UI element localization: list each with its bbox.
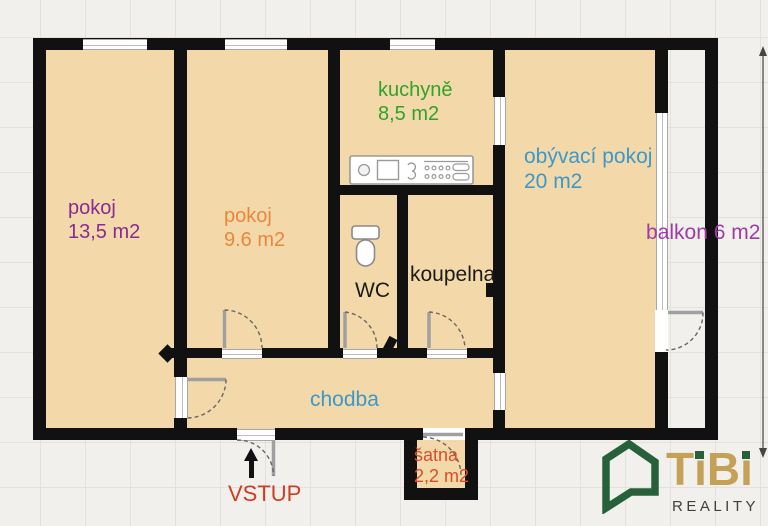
room-name: WC (355, 279, 390, 302)
wall-obyvaci-right (655, 44, 668, 113)
wall-satna-bottom (404, 488, 478, 500)
window (83, 39, 147, 50)
logo-letter: B (707, 446, 740, 492)
room-area: 2,2 m2 (414, 466, 469, 487)
wall-left (33, 38, 46, 440)
entrance-text: VSTUP (228, 481, 301, 506)
wall-obyvaci-left (493, 145, 505, 373)
wall-pokoj-divider (174, 418, 187, 440)
door-gap-entrance (237, 429, 275, 441)
room-label-pokoj-9-6: pokoj 9.6 m2 (224, 204, 285, 252)
house-icon (602, 440, 662, 514)
room-label-obyvaci-pokoj: obývací pokoj 20 m2 (524, 144, 652, 194)
room-area: 13,5 m2 (68, 220, 140, 244)
wall-pokoj-divider (174, 44, 187, 377)
wall-kuchyne-bottom (328, 185, 505, 195)
logo-letter: T (666, 446, 694, 492)
room-area: 20 m2 (524, 169, 652, 194)
wall-bottom (275, 428, 423, 440)
balcony-window (656, 113, 668, 310)
wall-bottom (33, 428, 237, 440)
room-name: chodba (310, 388, 379, 411)
room-label-pokoj-13-5: pokoj 13,5 m2 (68, 196, 140, 244)
room-label-chodba: chodba (310, 387, 379, 412)
room-area: 9.6 m2 (224, 228, 285, 252)
entrance-label: VSTUP (228, 481, 301, 507)
room-name: koupelna (410, 263, 495, 286)
door-gap-koupelna (427, 349, 467, 359)
wall-obyvaci-left (493, 44, 505, 97)
floor-plan: pokoj 13,5 m2 pokoj 9.6 m2 kuchyně 8,5 m… (0, 0, 768, 526)
wall-obyvaci-right (655, 352, 668, 440)
door-gap-wc (343, 349, 377, 359)
room-label-koupelna: koupelna (410, 262, 495, 287)
room-name: balkon (646, 221, 708, 244)
logo-tagline: REALITY (672, 498, 759, 515)
logo-letter: i (740, 446, 753, 492)
room-name: pokoj (68, 196, 140, 220)
room-name: kuchyně (378, 78, 453, 102)
room-label-kuchyne: kuchyně 8,5 m2 (378, 78, 453, 126)
door-gap-satna (423, 428, 465, 440)
room-area: 8,5 m2 (378, 102, 453, 126)
wall-obyvaci-left (493, 410, 505, 440)
door-gap-balkon (655, 310, 668, 352)
wall-kuchyne-left (328, 44, 340, 358)
obyvaci-doorway (494, 373, 506, 410)
entrance-arrow-icon (249, 460, 254, 478)
tibi-reality-logo: TiBi REALITY (600, 438, 768, 524)
wall-wc-koupelna (397, 195, 408, 358)
room-area: 6 m2 (714, 221, 761, 244)
window (390, 39, 435, 50)
dimension-line (759, 46, 767, 458)
door-gap-pokoj-13-5 (175, 377, 188, 418)
room-label-wc: WC (355, 278, 390, 303)
logo-brand: TiBi (666, 446, 753, 492)
room-name: pokoj (224, 204, 285, 228)
door-gap-pokoj-9-6 (222, 349, 262, 359)
room-name: šatna (414, 445, 469, 466)
kitchen-doorway (494, 97, 506, 145)
room-label-satna: šatna 2,2 m2 (414, 445, 469, 487)
window (225, 39, 287, 50)
room-name: obývací pokoj (524, 144, 652, 169)
room-label-balkon: balkon 6 m2 (646, 220, 760, 245)
logo-letter: i (694, 446, 707, 492)
